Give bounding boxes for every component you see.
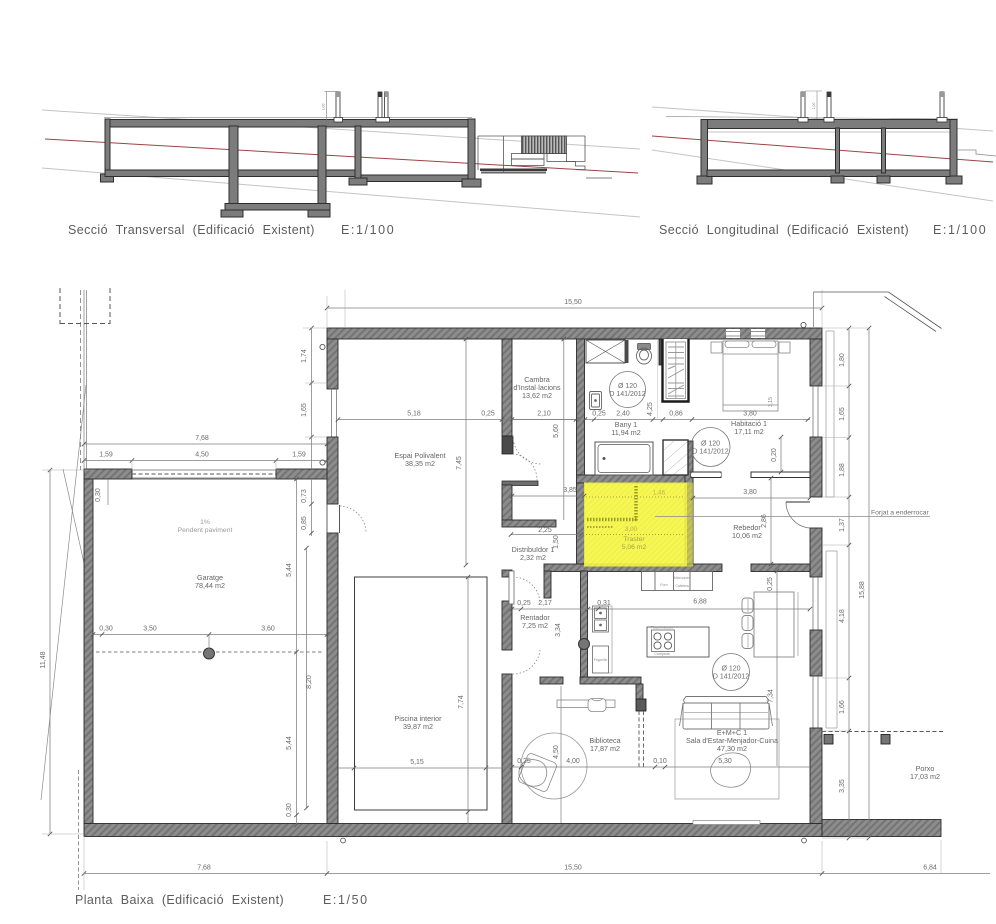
svg-text:4,50: 4,50 [553, 745, 560, 759]
svg-text:Forn: Forn [660, 583, 667, 587]
svg-text:4,18: 4,18 [839, 609, 846, 623]
svg-text:1,65: 1,65 [301, 403, 308, 417]
svg-text:5,06 m2: 5,06 m2 [622, 544, 647, 551]
svg-text:3,34: 3,34 [555, 623, 562, 637]
svg-text:1,74: 1,74 [301, 349, 308, 363]
svg-text:0,25: 0,25 [517, 600, 531, 607]
svg-text:2,86: 2,86 [761, 514, 768, 528]
svg-text:Ø 120: Ø 120 [618, 383, 637, 390]
svg-text:Placa inducció: Placa inducció [651, 626, 674, 630]
svg-text:5,30: 5,30 [718, 758, 732, 765]
svg-text:7,45: 7,45 [456, 456, 463, 470]
svg-text:4,00: 4,00 [566, 758, 580, 765]
svg-text:0,31: 0,31 [597, 600, 611, 607]
svg-text:7,74: 7,74 [458, 695, 465, 709]
svg-text:E:1/50: E:1/50 [323, 893, 369, 907]
svg-text:D 141/2012: D 141/2012 [609, 391, 645, 398]
svg-text:3,80: 3,80 [743, 411, 757, 418]
svg-text:5,60: 5,60 [553, 424, 560, 438]
svg-text:11,94 m2: 11,94 m2 [611, 428, 640, 437]
svg-text:47,30 m2: 47,30 m2 [717, 744, 747, 753]
svg-text:17,87 m2: 17,87 m2 [590, 744, 620, 753]
svg-text:5,15: 5,15 [410, 759, 424, 766]
svg-text:2,25: 2,25 [538, 527, 552, 534]
svg-text:Microones: Microones [674, 576, 690, 580]
svg-text:1,46: 1,46 [653, 490, 666, 497]
svg-text:1,00: 1,00 [812, 103, 816, 110]
svg-text:Pendent paviment: Pendent paviment [178, 527, 233, 534]
svg-text:1,59: 1,59 [292, 452, 306, 459]
svg-text:7,34: 7,34 [768, 689, 775, 703]
svg-text:5,44: 5,44 [286, 736, 293, 750]
svg-text:4,25: 4,25 [647, 402, 654, 416]
svg-text:0,25: 0,25 [767, 577, 774, 591]
svg-text:0,25: 0,25 [481, 411, 495, 418]
svg-text:0,25: 0,25 [592, 411, 606, 418]
svg-text:1%: 1% [200, 519, 210, 526]
svg-text:0,25: 0,25 [517, 758, 531, 765]
svg-text:5,44: 5,44 [286, 563, 293, 577]
svg-text:Campana: Campana [654, 652, 669, 656]
svg-text:3,15: 3,15 [768, 397, 774, 407]
svg-text:Frigorífic: Frigorífic [594, 658, 608, 662]
svg-text:Ø 120: Ø 120 [701, 441, 720, 448]
svg-text:E:1/100: E:1/100 [341, 223, 395, 237]
svg-text:0,85: 0,85 [301, 516, 308, 530]
svg-text:0,86: 0,86 [669, 411, 683, 418]
svg-text:1,37: 1,37 [839, 518, 846, 532]
svg-text:Ø 120: Ø 120 [721, 666, 740, 673]
svg-text:6,88: 6,88 [693, 599, 707, 606]
svg-text:2,40: 2,40 [616, 411, 630, 418]
svg-text:Planta Baixa (Edificació Exist: Planta Baixa (Edificació Existent) [75, 893, 284, 907]
svg-text:0,30: 0,30 [95, 488, 102, 502]
svg-text:11,48: 11,48 [40, 651, 47, 668]
svg-text:3,80: 3,80 [743, 489, 757, 496]
svg-text:Cafetera: Cafetera [675, 584, 688, 588]
svg-text:3,85: 3,85 [563, 487, 577, 494]
svg-text:15,50: 15,50 [564, 865, 582, 872]
svg-text:1,88: 1,88 [839, 463, 846, 477]
svg-text:Secció Longitudinal (Edificaci: Secció Longitudinal (Edificació Existent… [659, 223, 909, 237]
svg-text:1,59: 1,59 [99, 452, 113, 459]
svg-text:2,17: 2,17 [538, 600, 552, 607]
svg-text:Traster: Traster [623, 536, 645, 543]
svg-text:3,60: 3,60 [261, 626, 275, 633]
svg-text:3,50: 3,50 [143, 626, 157, 633]
svg-text:1,00: 1,00 [322, 104, 326, 111]
svg-text:4,50: 4,50 [195, 452, 209, 459]
svg-text:7,68: 7,68 [195, 435, 209, 442]
svg-text:1,65: 1,65 [839, 407, 846, 421]
svg-text:1,66: 1,66 [839, 700, 846, 714]
svg-text:17,11 m2: 17,11 m2 [734, 427, 763, 436]
svg-text:15,50: 15,50 [564, 299, 582, 306]
svg-text:0,30: 0,30 [286, 803, 293, 817]
svg-text:3,00: 3,00 [625, 526, 638, 533]
svg-text:Forjat a enderrocar: Forjat a enderrocar [871, 510, 930, 517]
svg-text:2,10: 2,10 [537, 411, 551, 418]
svg-text:8,20: 8,20 [306, 675, 313, 689]
svg-text:6,84: 6,84 [923, 865, 937, 872]
svg-text:0,73: 0,73 [301, 489, 308, 503]
svg-text:78,44 m2: 78,44 m2 [195, 581, 225, 590]
svg-text:39,87 m2: 39,87 m2 [403, 722, 433, 731]
svg-text:0,10: 0,10 [653, 758, 667, 765]
svg-text:3,35: 3,35 [839, 779, 846, 793]
svg-text:17,03 m2: 17,03 m2 [910, 772, 940, 781]
svg-text:2,32 m2: 2,32 m2 [520, 553, 546, 562]
svg-text:15,88: 15,88 [859, 581, 866, 599]
svg-text:10,06 m2: 10,06 m2 [732, 531, 762, 540]
svg-text:1,80: 1,80 [839, 353, 846, 367]
svg-text:13,62 m2: 13,62 m2 [522, 391, 552, 400]
svg-text:D 141/2012: D 141/2012 [692, 449, 728, 456]
svg-text:7,25 m2: 7,25 m2 [522, 621, 548, 630]
svg-text:0,20: 0,20 [771, 448, 778, 462]
svg-text:Secció Transversal (Edificació: Secció Transversal (Edificació Existent) [68, 223, 315, 237]
svg-text:D 141/2012: D 141/2012 [713, 674, 749, 681]
svg-text:7,68: 7,68 [197, 865, 211, 872]
svg-text:5,18: 5,18 [407, 411, 421, 418]
svg-text:38,35 m2: 38,35 m2 [405, 459, 435, 468]
svg-text:0,30: 0,30 [99, 626, 113, 633]
svg-text:E:1/100: E:1/100 [933, 223, 987, 237]
